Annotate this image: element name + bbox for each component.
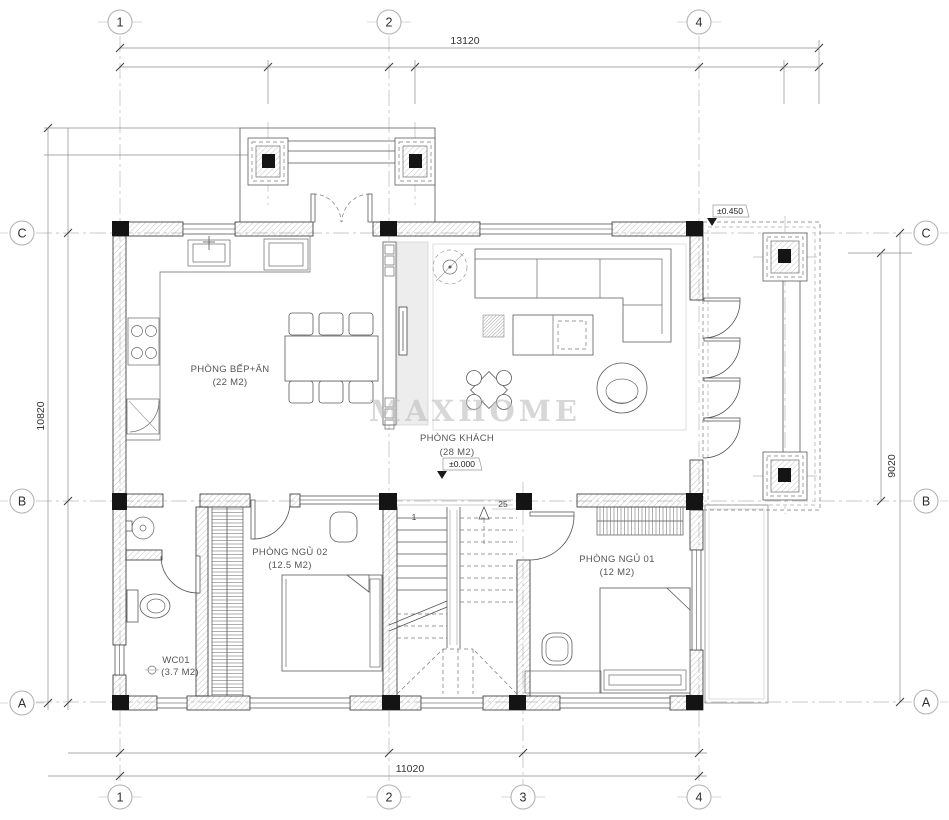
label-living-name: PHÒNG KHÁCH [420, 433, 494, 444]
folding-doors-veranda [703, 298, 740, 458]
svg-text:1: 1 [117, 16, 124, 30]
grid-bubble-right-C: C [904, 221, 948, 245]
bedroom1-window-right [692, 550, 701, 650]
label-living-area: (28 M2) [440, 447, 475, 458]
wc-window-left [115, 645, 124, 675]
kitchen-counter [126, 236, 310, 440]
kitchen-sink [188, 236, 230, 266]
grid-bubble-top-1: 1 [98, 10, 142, 34]
label-bedroom1-area: (12 M2) [600, 567, 635, 578]
grid-bubble-bottom-4: 4 [677, 785, 721, 809]
wc-door [161, 556, 200, 593]
dim-left: 10820 [35, 401, 47, 430]
fridge [127, 399, 159, 434]
svg-text:3: 3 [520, 791, 527, 805]
grid-bubble-left-B: B [0, 489, 44, 513]
kitchen-corner-unit [264, 239, 308, 270]
bedroom2-window [250, 698, 350, 708]
pouf [483, 315, 504, 337]
veranda-column-top [763, 233, 807, 281]
stair-riser-count: 25 [498, 499, 508, 509]
wc-symbol [145, 666, 159, 674]
stair-window [421, 698, 483, 708]
svg-text:2: 2 [386, 791, 393, 805]
grid-bubble-left-A: A [0, 691, 44, 715]
kitchen-window [183, 224, 235, 234]
stairs: 1 25 [389, 499, 517, 694]
grid-bubble-right-B: B [904, 489, 948, 513]
bedroom2-wardrobe [212, 507, 243, 696]
label-bedroom2-name: PHÒNG NGỦ 02 [252, 546, 327, 558]
dim-top: 13120 [450, 35, 479, 47]
wc-fixtures [126, 517, 170, 674]
level-porch: ±0.450 [707, 205, 749, 226]
washer [126, 517, 154, 539]
svg-text:B: B [18, 495, 26, 509]
side-walkway [705, 505, 768, 703]
label-wc-name: WC01 [162, 655, 190, 666]
living-window [480, 224, 612, 234]
bedroom1-window-bottom [560, 698, 670, 708]
label-bedroom2-area: (12.5 M2) [268, 560, 311, 571]
svg-text:±0.450: ±0.450 [717, 206, 743, 216]
label-wc-area: (3.7 M2) [161, 667, 199, 678]
coffee-table [513, 315, 593, 355]
svg-text:4: 4 [696, 791, 703, 805]
right-veranda [703, 222, 820, 703]
svg-text:A: A [18, 697, 27, 711]
grid-bubble-top-4: 4 [677, 10, 721, 34]
grid-bubble-right-A: A [904, 690, 948, 714]
dim-bottom: 11020 [396, 763, 425, 775]
grid-bubble-top-2: 2 [367, 10, 411, 34]
bedroom1-desk [525, 671, 601, 693]
kitchen-fixtures [126, 236, 378, 440]
svg-text:4: 4 [696, 16, 703, 30]
floor-plan-canvas: 13120 11020 10820 [0, 0, 949, 820]
stair-up-arrow [479, 507, 489, 519]
maxhome-watermark: MAXHOME [369, 394, 581, 428]
label-bedroom1-name: PHÒNG NGỦ 01 [579, 553, 654, 565]
porch-column-left [248, 138, 288, 185]
svg-text:A: A [922, 696, 931, 710]
grid-bubble-left-C: C [0, 221, 44, 245]
grid-bubble-bottom-2: 2 [367, 785, 411, 809]
bedroom1-fixtures [525, 507, 690, 693]
bedroom2-door [251, 500, 290, 539]
svg-text:C: C [17, 227, 26, 241]
ceiling-fan [433, 250, 467, 284]
bedroom1-chair [542, 633, 572, 665]
dining-set [285, 313, 378, 403]
label-kitchen-area: (22 M2) [213, 377, 248, 388]
porch-column-right [395, 138, 435, 185]
bedroom2-chair [330, 512, 357, 542]
bedroom1-bed [600, 588, 690, 693]
stove [128, 318, 159, 365]
stair-start-number: 1 [412, 512, 417, 522]
bedroom1-door [530, 512, 574, 560]
wc-window-bottom [157, 698, 187, 708]
floor-plan-drawing: 13120 11020 10820 [0, 0, 949, 820]
grid-bubble-bottom-1: 1 [98, 785, 142, 809]
level-living: ±0.000 [437, 458, 482, 479]
svg-text:B: B [922, 495, 930, 509]
svg-text:±0.000: ±0.000 [449, 459, 475, 469]
svg-text:C: C [921, 227, 930, 241]
veranda-column-bottom [763, 452, 807, 500]
entry-double-door [311, 194, 372, 222]
bedroom2-bed [282, 575, 382, 671]
dim-right: 9020 [886, 454, 898, 478]
svg-text:2: 2 [386, 16, 393, 30]
bedroom2-fixtures [212, 507, 382, 696]
armchair [597, 363, 647, 413]
toilet [127, 590, 170, 622]
label-kitchen-name: PHÒNG BẾP+ĂN [191, 364, 270, 375]
grid-bubble-bottom-3: 3 [501, 785, 545, 809]
svg-text:1: 1 [117, 791, 124, 805]
